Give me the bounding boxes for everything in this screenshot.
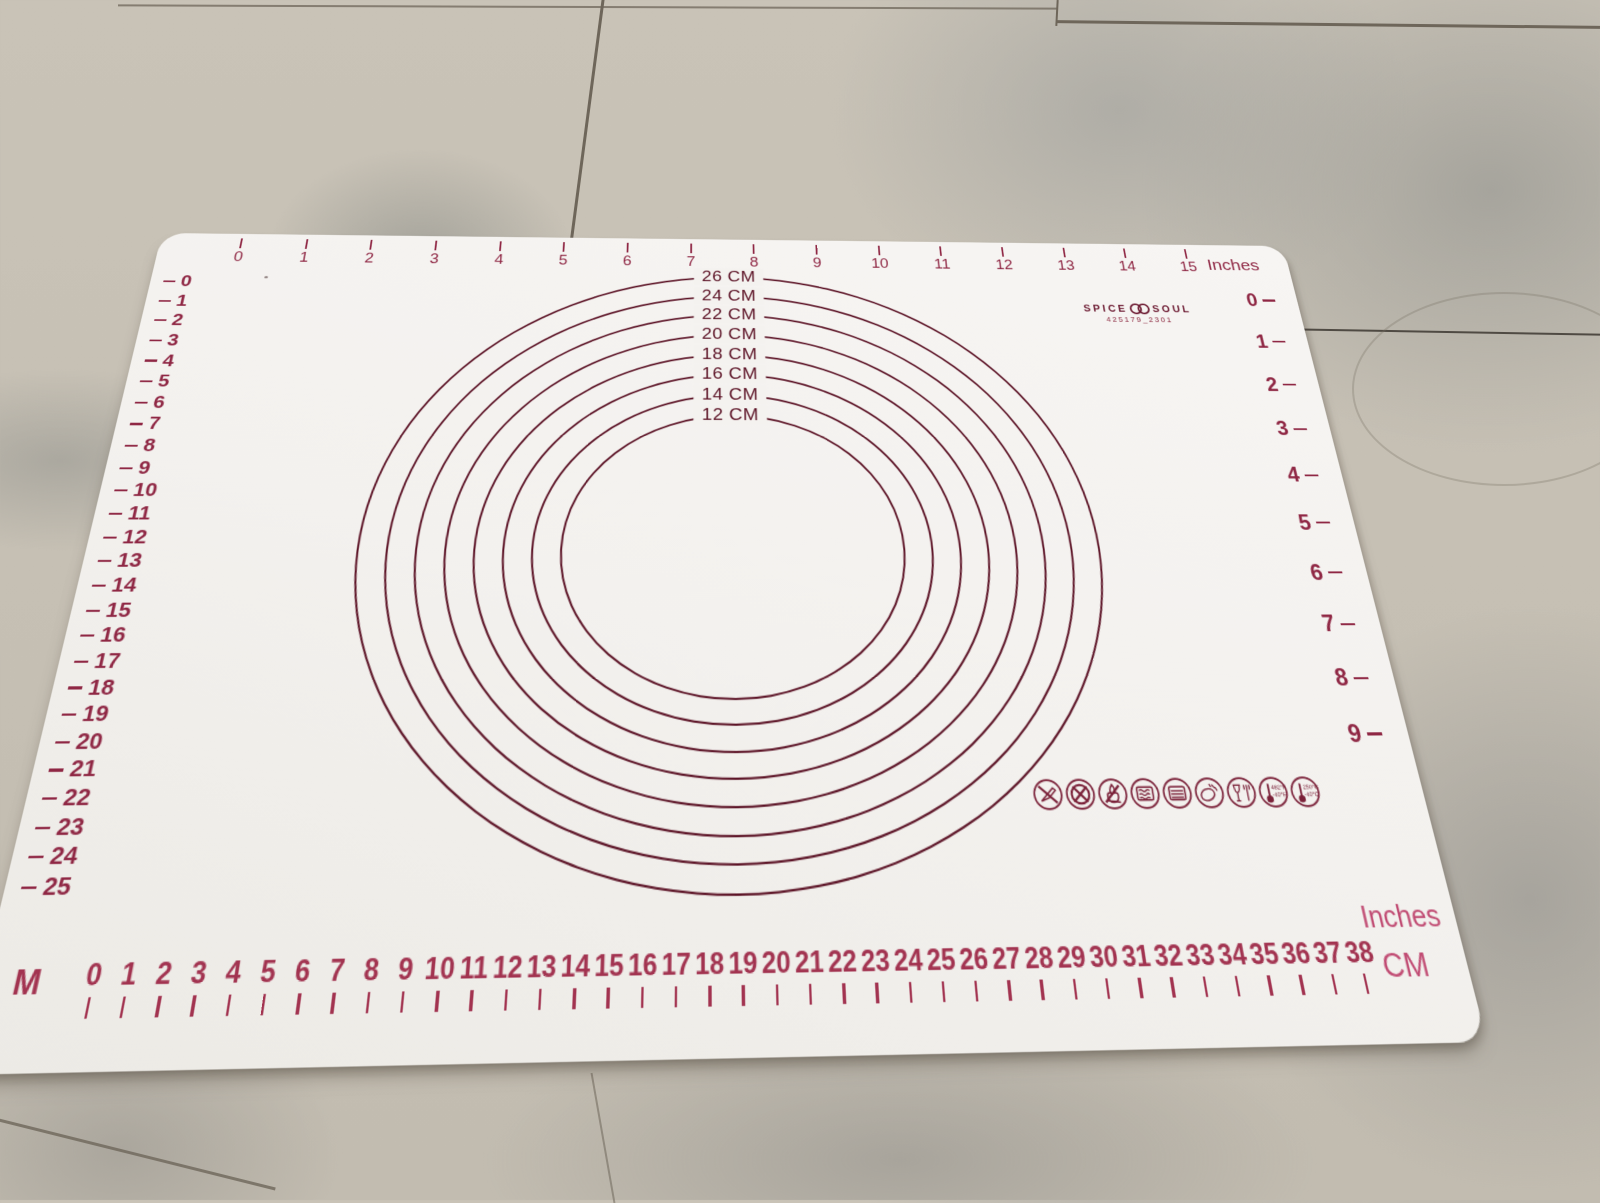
ruler-top-tick: 8 bbox=[735, 244, 774, 269]
ruler-right-tick: 7 bbox=[1279, 611, 1358, 638]
tile-seam-horizontal-top-right bbox=[1056, 20, 1600, 28]
ruler-left-tick: 24 bbox=[25, 842, 81, 872]
tick-mark bbox=[674, 986, 677, 1007]
tick-mark bbox=[499, 241, 502, 251]
tick-mark bbox=[140, 380, 153, 382]
ruler-right-tick: 0 bbox=[1209, 290, 1278, 311]
tick-mark bbox=[21, 886, 37, 889]
ruler-right-tick: 9 bbox=[1303, 720, 1386, 749]
tick-mark bbox=[1170, 977, 1176, 998]
svg-text:-40°F: -40°F bbox=[1272, 791, 1287, 798]
ruler-left-tick: 25 bbox=[18, 872, 74, 903]
tick-mark bbox=[61, 714, 76, 717]
tick-label: 2 bbox=[170, 311, 185, 330]
food-safe-icon bbox=[1223, 776, 1260, 810]
ruler-left-tick: 15 bbox=[83, 598, 133, 623]
svg-text:-40°C: -40°C bbox=[1304, 791, 1321, 798]
tick-mark bbox=[103, 536, 117, 538]
ruler-left-cm: 0123456789101112131415161718192021222324… bbox=[162, 233, 1283, 246]
tick-label: 1 bbox=[174, 291, 189, 310]
ruler-right-tick: 1 bbox=[1218, 331, 1288, 353]
tick-mark bbox=[130, 423, 143, 425]
tick-label: 7 bbox=[672, 254, 711, 268]
tick-label: 0 bbox=[217, 249, 260, 263]
tick-mark bbox=[68, 687, 83, 689]
tick-mark bbox=[1007, 980, 1012, 1001]
tick-label: 15 bbox=[103, 598, 133, 622]
tick-label: 8 bbox=[141, 435, 157, 456]
tick-mark bbox=[86, 609, 100, 611]
tick-mark bbox=[154, 319, 167, 321]
tick-mark bbox=[119, 997, 126, 1019]
circle-guides: 26 CM24 CM22 CM20 CM18 CM16 CM14 CM12 CM bbox=[162, 233, 1283, 246]
tick-mark bbox=[1293, 428, 1307, 430]
tick-label: 5 bbox=[1296, 511, 1314, 535]
tick-label: 0 bbox=[179, 272, 194, 291]
ruler-right-tick: 5 bbox=[1257, 511, 1333, 536]
ruler-top-tick: 12 bbox=[983, 247, 1024, 272]
ruler-top-tick: 10 bbox=[860, 245, 900, 270]
tile-seam-bottom-center bbox=[591, 1073, 616, 1203]
tick-label: 5 bbox=[156, 371, 172, 391]
ruler-top-tick: 6 bbox=[608, 243, 647, 268]
ruler-right-tick: 2 bbox=[1227, 373, 1299, 395]
ruler-top-tick: 0 bbox=[217, 238, 262, 263]
svg-text:250°C: 250°C bbox=[1302, 783, 1320, 790]
tick-mark bbox=[49, 769, 64, 772]
tick-mark bbox=[1340, 623, 1355, 625]
tick-mark bbox=[114, 490, 128, 492]
tick-mark bbox=[469, 990, 474, 1011]
brand-word-right: SOUL bbox=[1151, 304, 1192, 315]
ruler-top-tick: 5 bbox=[543, 242, 583, 267]
tick-mark bbox=[1123, 249, 1126, 258]
ruler-top-inches: 0123456789101112131415 bbox=[162, 233, 1283, 246]
microwave-safe-icon bbox=[1127, 777, 1163, 811]
tick-mark bbox=[775, 984, 778, 1005]
tick-mark bbox=[74, 660, 89, 662]
tick-mark bbox=[875, 983, 879, 1004]
ruler-left-tick: 1 bbox=[157, 291, 190, 310]
tile-stain-ring bbox=[1352, 292, 1600, 486]
ruler-left-tick: 14 bbox=[89, 574, 139, 598]
circle-guide-label: 14 CM bbox=[693, 385, 766, 404]
ruler-top-tick: 1 bbox=[283, 239, 327, 264]
tick-label: 4 bbox=[479, 252, 519, 266]
tick-label: 4 bbox=[1285, 463, 1302, 487]
tile-seam-bottom-left bbox=[0, 1113, 276, 1190]
ruler-top-tick: 4 bbox=[479, 241, 520, 266]
ruler-right-tick: 4 bbox=[1247, 463, 1322, 487]
tick-mark bbox=[538, 989, 542, 1010]
tick-label: 13 bbox=[115, 549, 144, 573]
oven-safe-icon bbox=[1159, 776, 1196, 810]
ruler-right-tick: 8 bbox=[1291, 664, 1372, 692]
tick-label: 10 bbox=[860, 257, 899, 271]
tick-label: 19 bbox=[80, 701, 111, 728]
ruler-left-tick: 9 bbox=[117, 457, 153, 479]
ruler-left-tick: 23 bbox=[32, 813, 87, 842]
tick-mark bbox=[1272, 341, 1285, 343]
tick-mark bbox=[225, 995, 231, 1016]
tick-label: 9 bbox=[136, 457, 153, 479]
ruler-top-unit-label: Inches bbox=[1205, 257, 1261, 275]
tick-mark bbox=[1304, 474, 1318, 476]
tick-label: 3 bbox=[1274, 418, 1291, 441]
tick-mark bbox=[815, 245, 817, 255]
tick-mark bbox=[939, 246, 942, 256]
tick-label: 6 bbox=[1307, 560, 1325, 585]
tick-mark bbox=[606, 988, 610, 1009]
tick-mark bbox=[1105, 978, 1111, 999]
tick-label: 7 bbox=[146, 414, 162, 435]
svg-text:482°F: 482°F bbox=[1270, 784, 1287, 791]
ruler-top-tick: 2 bbox=[349, 240, 392, 265]
tick-label: 2 bbox=[349, 251, 390, 265]
ruler-left-tick: 8 bbox=[122, 435, 157, 457]
tile-seam-horizontal-top-left bbox=[118, 4, 1058, 9]
tick-mark bbox=[1138, 978, 1144, 999]
tick-label: 3 bbox=[414, 252, 455, 266]
tick-label: 6 bbox=[608, 254, 647, 268]
ruler-top-tick: 11 bbox=[922, 246, 962, 271]
tick-mark bbox=[809, 984, 813, 1005]
ruler-left-tick: 21 bbox=[46, 756, 100, 784]
ruler-bottom-corner-label: M bbox=[9, 962, 45, 1004]
no-knife-icon bbox=[1030, 778, 1066, 812]
temperature-celsius-icon: 250°C -40°C bbox=[1286, 775, 1324, 809]
tick-mark bbox=[435, 991, 440, 1012]
ruler-top-tick: 15 bbox=[1166, 249, 1208, 274]
tick-label: 18 bbox=[86, 675, 117, 701]
tick-mark bbox=[878, 246, 880, 256]
tick-label: 21 bbox=[67, 756, 99, 784]
ruler-left-tick: 3 bbox=[147, 330, 180, 350]
care-icons-row: 482°F -40°F 250°C -40°C bbox=[1030, 775, 1324, 812]
tick-label: 15 bbox=[1169, 260, 1209, 274]
tick-mark bbox=[563, 242, 565, 252]
tick-label: 3 bbox=[165, 331, 180, 351]
tick-mark bbox=[159, 300, 171, 302]
circle-guide-label: 20 CM bbox=[694, 325, 766, 343]
tick-mark bbox=[690, 244, 692, 254]
tick-mark bbox=[365, 992, 370, 1013]
tick-label: 11 bbox=[923, 257, 962, 271]
tick-mark bbox=[98, 560, 112, 562]
ruler-bottom-unit-inches-label: Inches bbox=[1357, 900, 1444, 936]
ruler-top-tick: 13 bbox=[1045, 248, 1086, 273]
tick-label: 17 bbox=[92, 649, 123, 674]
tick-label: 9 bbox=[798, 256, 837, 270]
tick-mark bbox=[1367, 733, 1383, 735]
tick-mark bbox=[640, 987, 643, 1008]
tick-mark bbox=[974, 981, 979, 1002]
tick-mark bbox=[1267, 975, 1274, 995]
circle-guide-label: 22 CM bbox=[694, 306, 765, 324]
ruler-left-tick: 6 bbox=[133, 392, 167, 413]
ruler-right-tick: 3 bbox=[1237, 417, 1310, 440]
tick-mark bbox=[295, 993, 301, 1014]
tick-label: 0 bbox=[1244, 290, 1260, 310]
tick-mark bbox=[842, 983, 846, 1004]
ruler-right-tick: 6 bbox=[1268, 560, 1346, 586]
no-sharp-objects-icon bbox=[1063, 777, 1099, 811]
ruler-left-tick: 7 bbox=[127, 413, 162, 434]
tick-label: 4 bbox=[161, 351, 177, 371]
tick-label: 24 bbox=[47, 842, 80, 872]
tick-mark bbox=[1001, 247, 1004, 257]
ruler-left-tick: 20 bbox=[52, 728, 105, 755]
tick-label: 13 bbox=[1046, 259, 1085, 273]
tick-label: 20 bbox=[73, 728, 105, 755]
tick-mark bbox=[28, 856, 44, 859]
tick-label: 25 bbox=[40, 872, 74, 902]
brand-logo: SPICE SOUL 425179_2301 bbox=[1068, 303, 1209, 324]
tick-label: 10 bbox=[131, 480, 159, 502]
ruler-left-tick: 19 bbox=[59, 701, 111, 728]
tick-mark bbox=[190, 995, 197, 1016]
tick-label: 9 bbox=[1345, 720, 1365, 749]
tick-mark bbox=[753, 244, 755, 254]
ruler-left-tick: 13 bbox=[95, 549, 144, 573]
tick-label: 1 bbox=[1254, 331, 1270, 352]
tick-mark bbox=[1299, 975, 1306, 995]
tick-label: 8 bbox=[1332, 664, 1351, 692]
tick-mark bbox=[572, 988, 576, 1009]
tick-mark bbox=[149, 339, 162, 341]
ruler-left-tick: 4 bbox=[142, 351, 176, 371]
tick-label: 12 bbox=[985, 258, 1024, 272]
tick-mark bbox=[42, 797, 57, 800]
tick-mark bbox=[125, 445, 138, 447]
mat-speck bbox=[264, 276, 268, 278]
baking-mat: 0123456789101112131415 Inches 0123456789… bbox=[0, 233, 1487, 1075]
ruler-left-tick: 5 bbox=[137, 371, 171, 392]
brand-word-left: SPICE bbox=[1083, 303, 1129, 314]
ruler-left-tick: 18 bbox=[65, 675, 117, 701]
tick-mark bbox=[434, 241, 437, 251]
tick-mark bbox=[1073, 979, 1078, 1000]
tick-mark bbox=[1062, 248, 1065, 258]
tick-mark bbox=[305, 239, 308, 249]
tick-mark bbox=[92, 584, 106, 586]
ruler-bottom-unit-cm-label: CM bbox=[1379, 946, 1434, 986]
ruler-top-tick: 9 bbox=[797, 245, 836, 270]
no-open-flame-icon bbox=[1095, 777, 1131, 811]
tick-mark bbox=[35, 826, 50, 829]
tick-mark bbox=[260, 994, 266, 1015]
ruler-left-tick: 0 bbox=[161, 272, 194, 291]
circle-guide-label: 12 CM bbox=[693, 406, 767, 425]
tick-mark bbox=[370, 240, 373, 250]
tick-mark bbox=[239, 238, 243, 248]
tick-mark bbox=[908, 982, 912, 1003]
tick-label: 14 bbox=[109, 574, 139, 598]
tick-mark bbox=[84, 997, 91, 1019]
ruler-left-tick: 12 bbox=[101, 526, 150, 549]
tick-label: 22 bbox=[60, 784, 93, 812]
tick-label: 1 bbox=[283, 250, 325, 264]
tick-label: 14 bbox=[1108, 259, 1148, 273]
ruler-top-tick: 3 bbox=[414, 240, 456, 265]
tick-mark bbox=[163, 280, 175, 282]
tick-label: 5 bbox=[543, 253, 583, 267]
tick-label: 6 bbox=[151, 392, 167, 413]
circle-guide-label: 18 CM bbox=[694, 345, 766, 363]
tick-mark bbox=[109, 513, 123, 515]
tick-mark bbox=[1235, 976, 1241, 996]
tick-mark bbox=[1184, 249, 1188, 258]
tick-label: 2 bbox=[1264, 374, 1280, 396]
tick-mark bbox=[742, 985, 745, 1006]
tick-mark bbox=[627, 243, 629, 253]
ruler-left-tick: 17 bbox=[71, 649, 122, 675]
circle-guide-label: 24 CM bbox=[694, 287, 764, 305]
ruler-left-tick: 11 bbox=[106, 503, 153, 526]
photo-scene: { "colors": { "print_dark": "#5c1326", "… bbox=[0, 0, 1600, 1200]
ruler-top-tick: 7 bbox=[672, 243, 711, 268]
tick-mark bbox=[1262, 300, 1275, 302]
tick-mark bbox=[145, 360, 158, 362]
tick-mark bbox=[1316, 522, 1330, 524]
tick-mark bbox=[1353, 677, 1368, 679]
tick-mark bbox=[80, 635, 94, 637]
tick-label: 7 bbox=[1320, 611, 1339, 638]
ruler-left-tick: 22 bbox=[39, 784, 93, 813]
brand-code: 425179_2301 bbox=[1070, 315, 1209, 324]
tick-mark bbox=[155, 996, 162, 1018]
tick-mark bbox=[1331, 974, 1338, 994]
ruler-right-inches: 0123456789 bbox=[162, 233, 1283, 246]
circle-guide-label: 26 CM bbox=[694, 268, 764, 285]
tick-mark bbox=[330, 993, 336, 1014]
tick-mark bbox=[708, 986, 711, 1007]
ruler-left-tick: 16 bbox=[77, 623, 128, 648]
tick-mark bbox=[941, 981, 945, 1002]
ruler-left-tick: 2 bbox=[152, 311, 185, 331]
tick-mark bbox=[55, 741, 70, 744]
ruler-bottom-cm: 0123456789101112131415161718192021222324… bbox=[162, 233, 1283, 246]
tick-label: 16 bbox=[98, 623, 128, 648]
circle-guide-label: 16 CM bbox=[694, 365, 767, 384]
tick-mark bbox=[504, 989, 508, 1010]
tick-mark bbox=[1040, 980, 1045, 1001]
dishwasher-safe-icon bbox=[1191, 776, 1228, 810]
tick-mark bbox=[1328, 571, 1343, 573]
tick-mark bbox=[1202, 977, 1208, 997]
tick-label: 8 bbox=[735, 255, 774, 269]
tick-mark bbox=[119, 467, 132, 469]
tick-mark bbox=[400, 991, 405, 1012]
tile-seam-vertical-top bbox=[570, 0, 604, 239]
tick-label: 11 bbox=[126, 503, 154, 526]
tick-mark bbox=[135, 402, 148, 404]
ruler-top-tick: 14 bbox=[1106, 248, 1148, 273]
tick-label: 23 bbox=[54, 813, 87, 842]
double-ring-icon bbox=[1129, 303, 1151, 314]
ruler-left-tick: 10 bbox=[112, 480, 160, 502]
tick-mark bbox=[1363, 974, 1370, 994]
tick-label: 12 bbox=[120, 526, 149, 549]
tick-mark bbox=[1283, 384, 1297, 386]
